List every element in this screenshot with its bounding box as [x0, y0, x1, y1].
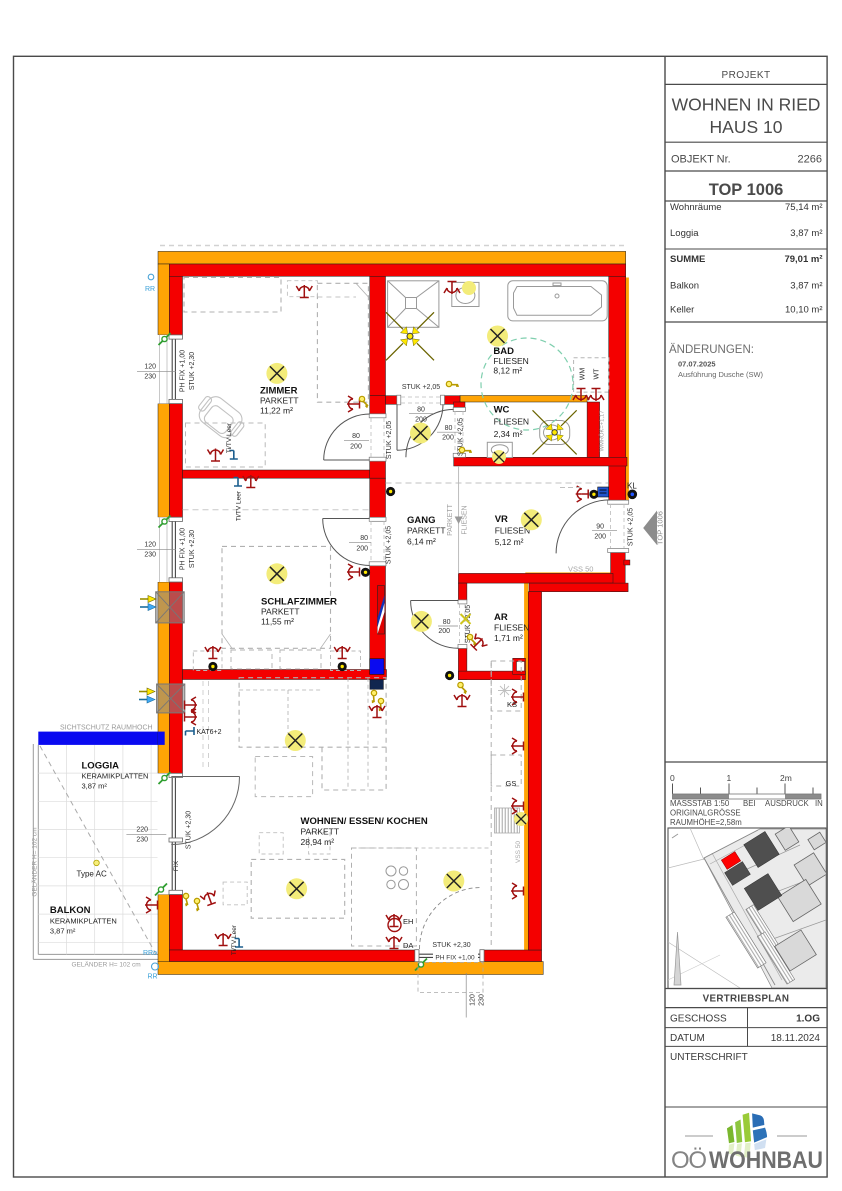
svg-text:ÄNDERUNGEN:: ÄNDERUNGEN:: [669, 344, 754, 356]
svg-text:BALKON: BALKON: [50, 905, 91, 916]
svg-text:EH: EH: [403, 917, 413, 926]
svg-text:200: 200: [356, 546, 368, 553]
svg-text:WMRÖK=+1,17: WMRÖK=+1,17: [599, 411, 606, 452]
svg-text:Ti/TV Leer: Ti/TV Leer: [226, 422, 233, 453]
svg-text:230: 230: [144, 374, 156, 381]
svg-text:79,01 m²: 79,01 m²: [784, 254, 822, 265]
svg-text:WC: WC: [494, 405, 510, 416]
svg-text:WOHNBAU: WOHNBAU: [709, 1147, 823, 1174]
svg-text:KERAMIKPLATTEN: KERAMIKPLATTEN: [50, 917, 117, 926]
svg-text:Ti/TV Leer: Ti/TV Leer: [236, 490, 243, 521]
svg-text:28,94 m²: 28,94 m²: [301, 837, 335, 847]
svg-text:80: 80: [417, 407, 425, 414]
svg-text:WOHNEN/ ESSEN/ KOCHEN: WOHNEN/ ESSEN/ KOCHEN: [301, 816, 428, 827]
svg-text:2,34 m²: 2,34 m²: [494, 429, 523, 439]
svg-text:VSS 50: VSS 50: [515, 841, 522, 863]
svg-text:STUK +2,30: STUK +2,30: [189, 352, 196, 390]
svg-text:TOP 1006: TOP 1006: [656, 511, 665, 545]
svg-text:PROJEKT: PROJEKT: [722, 70, 771, 81]
svg-text:2m: 2m: [780, 773, 792, 783]
svg-text:GANG: GANG: [407, 515, 436, 526]
svg-text:120: 120: [470, 994, 477, 1006]
svg-text:FLIESEN: FLIESEN: [494, 623, 529, 633]
svg-text:10,10 m²: 10,10 m²: [785, 305, 823, 316]
svg-text:1.OG: 1.OG: [796, 1014, 820, 1025]
svg-text:90: 90: [596, 524, 604, 531]
svg-text:200: 200: [594, 534, 606, 541]
svg-text:5,12 m²: 5,12 m²: [495, 537, 524, 547]
svg-text:KL: KL: [627, 482, 637, 491]
svg-text:Ausführung Dusche (SW): Ausführung Dusche (SW): [678, 370, 764, 379]
svg-text:FIX: FIX: [173, 860, 180, 871]
svg-text:230: 230: [479, 994, 486, 1006]
svg-text:BEI: BEI: [743, 799, 756, 808]
svg-text:Keller: Keller: [670, 305, 694, 316]
svg-text:UNTERSCHRIFT: UNTERSCHRIFT: [670, 1052, 748, 1063]
svg-text:GESCHOSS: GESCHOSS: [670, 1014, 727, 1025]
svg-text:RRo: RRo: [143, 950, 157, 957]
svg-text:3,87 m²: 3,87 m²: [790, 281, 822, 292]
svg-text:Loggia: Loggia: [670, 228, 699, 239]
svg-text:FLIESEN: FLIESEN: [462, 505, 469, 534]
svg-text:200: 200: [442, 435, 454, 442]
svg-text:0: 0: [670, 773, 675, 783]
svg-text:11,55 m²: 11,55 m²: [261, 617, 294, 627]
svg-text:220: 220: [136, 827, 148, 834]
svg-text:18.11.2024: 18.11.2024: [771, 1033, 821, 1044]
svg-text:80: 80: [352, 433, 360, 440]
svg-text:3,87 m²: 3,87 m²: [82, 782, 108, 791]
svg-text:PH FIX +1,00: PH FIX +1,00: [180, 528, 187, 570]
svg-text:Wohnräume: Wohnräume: [670, 202, 722, 213]
svg-text:VSS 50: VSS 50: [568, 565, 593, 574]
svg-text:OÖ: OÖ: [671, 1147, 707, 1174]
svg-text:IN: IN: [815, 799, 823, 808]
svg-text:KS: KS: [507, 700, 517, 709]
svg-text:ORIGINALGRÖSSE: ORIGINALGRÖSSE: [670, 809, 741, 818]
svg-text:STUK +2,30: STUK +2,30: [432, 942, 470, 949]
svg-text:WT: WT: [594, 368, 601, 380]
svg-text:1,71 m²: 1,71 m²: [494, 633, 523, 643]
svg-text:120: 120: [144, 364, 156, 371]
svg-text:Type AC: Type AC: [77, 870, 107, 879]
svg-text:11,22 m²: 11,22 m²: [260, 406, 293, 416]
svg-text:Balkon: Balkon: [670, 281, 699, 292]
svg-text:6,14 m²: 6,14 m²: [407, 537, 436, 547]
svg-text:PARKETT: PARKETT: [407, 526, 446, 536]
svg-text:120: 120: [144, 542, 156, 549]
svg-text:STUK +2,05: STUK +2,05: [386, 526, 393, 564]
svg-text:GELÄNDER H= 102 cm: GELÄNDER H= 102 cm: [72, 961, 141, 969]
svg-text:TOP 1006: TOP 1006: [709, 181, 784, 199]
svg-text:FLIESEN: FLIESEN: [493, 356, 528, 366]
svg-text:STUK +2,05: STUK +2,05: [402, 384, 440, 391]
svg-text:GELÄNDER H= 102 cm: GELÄNDER H= 102 cm: [31, 827, 39, 896]
svg-text:KAT6+2: KAT6+2: [197, 729, 222, 736]
svg-text:Ti/TV Leer: Ti/TV Leer: [231, 924, 238, 955]
svg-text:GS: GS: [506, 779, 517, 788]
svg-text:OBJEKT Nr.: OBJEKT Nr.: [671, 154, 731, 166]
svg-text:FLIESEN: FLIESEN: [494, 417, 529, 427]
svg-text:LOGGIA: LOGGIA: [82, 761, 120, 772]
svg-text:WOHNEN IN RIED: WOHNEN IN RIED: [672, 95, 821, 115]
svg-text:VERTRIEBSPLAN: VERTRIEBSPLAN: [703, 994, 790, 1005]
svg-text:07.07.2025: 07.07.2025: [678, 360, 716, 369]
svg-text:AR: AR: [494, 612, 508, 623]
svg-text:VR: VR: [495, 514, 508, 525]
svg-text:MASSSTAB: MASSSTAB: [670, 799, 712, 808]
svg-text:PH FIX +1,00: PH FIX +1,00: [435, 955, 475, 962]
svg-text:HAUS 10: HAUS 10: [710, 117, 783, 137]
svg-text:SUMME: SUMME: [670, 254, 705, 265]
svg-text:3,87 m²: 3,87 m²: [50, 927, 76, 936]
svg-text:80: 80: [443, 619, 451, 626]
svg-text:RR: RR: [145, 286, 155, 293]
svg-text:AUSDRUCK: AUSDRUCK: [765, 799, 810, 808]
svg-text:WM: WM: [580, 368, 587, 381]
svg-text:80: 80: [445, 425, 453, 432]
svg-text:PH FIX +1,00: PH FIX +1,00: [180, 350, 187, 392]
svg-text:PARKETT: PARKETT: [261, 607, 300, 617]
svg-text:KERAMIKPLATTEN: KERAMIKPLATTEN: [82, 772, 149, 781]
svg-text:200: 200: [350, 444, 362, 451]
svg-text:80: 80: [360, 535, 368, 542]
svg-text:200: 200: [438, 628, 450, 635]
svg-text:STUK +2,05: STUK +2,05: [628, 508, 635, 546]
svg-text:2266: 2266: [798, 154, 822, 166]
svg-text:75,14 m²: 75,14 m²: [785, 202, 823, 213]
svg-text:STUK +2,05: STUK +2,05: [386, 421, 393, 459]
svg-text:PARKETT: PARKETT: [447, 503, 454, 535]
svg-text:1: 1: [727, 773, 732, 783]
svg-text:DATUM: DATUM: [670, 1033, 705, 1044]
svg-text:PARKETT: PARKETT: [301, 827, 340, 837]
svg-text:8,12 m²: 8,12 m²: [493, 366, 522, 376]
svg-text:3,87 m²: 3,87 m²: [790, 228, 822, 239]
svg-text:PARKETT: PARKETT: [260, 396, 299, 406]
svg-text:230: 230: [144, 552, 156, 559]
svg-text:RR: RR: [148, 974, 158, 981]
svg-text:RAUMHÖHE=2,58m: RAUMHÖHE=2,58m: [670, 818, 742, 827]
svg-text:STUK +2,30: STUK +2,30: [189, 530, 196, 568]
svg-text:230: 230: [136, 837, 148, 844]
svg-text:DA: DA: [403, 941, 413, 950]
svg-text:SICHTSCHUTZ RAUMHOCH: SICHTSCHUTZ RAUMHOCH: [60, 725, 153, 732]
svg-text:1:50: 1:50: [714, 799, 730, 808]
